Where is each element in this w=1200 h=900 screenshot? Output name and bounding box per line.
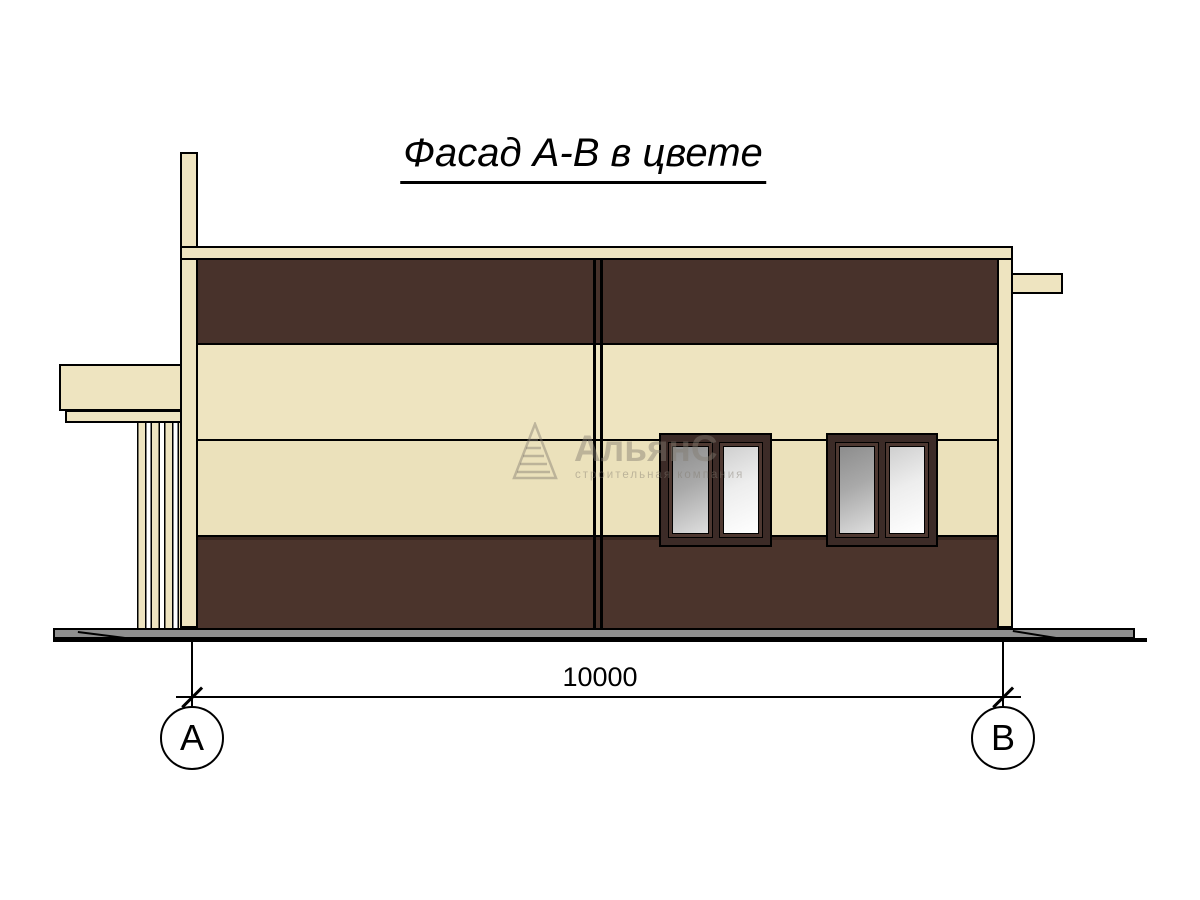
window-1 [659, 433, 772, 547]
drawing-title: Фасад А-В в цвете [400, 131, 766, 184]
axis-bubble-a: А [160, 706, 224, 770]
window-1-left-pane [668, 442, 713, 538]
roof-fascia [180, 246, 1013, 260]
wall-band-upper-cream [198, 345, 998, 441]
chimney-and-left-corner-post [180, 152, 198, 628]
wall-band-top-brown [198, 260, 998, 345]
porch-balusters [137, 422, 180, 628]
ground-baseline [53, 638, 1147, 642]
porch-canopy [59, 364, 182, 411]
window-2-left-glass [839, 446, 875, 534]
axis-label-a: А [180, 717, 204, 759]
dimension-label: 10000 [518, 662, 682, 693]
right-eave-beam [1011, 273, 1063, 294]
panel-joint-line-left [593, 260, 596, 628]
axis-label-b: В [991, 717, 1015, 759]
axis-bubble-b: В [971, 706, 1035, 770]
window-2-right-pane [885, 442, 929, 538]
right-corner-post [997, 258, 1013, 628]
window-1-right-pane [719, 442, 764, 538]
window-1-left-glass [672, 446, 709, 534]
wall-band-bottom-brown [198, 537, 998, 628]
window-1-right-glass [723, 446, 760, 534]
window-2 [826, 433, 938, 547]
window-2-left-pane [835, 442, 879, 538]
band-joint-line-upper [198, 343, 998, 345]
window-2-right-glass [889, 446, 925, 534]
panel-joint-line-right [600, 260, 603, 628]
facade-drawing: Фасад А-В в цвете 1 [0, 0, 1200, 900]
dimension-line [176, 696, 1021, 698]
